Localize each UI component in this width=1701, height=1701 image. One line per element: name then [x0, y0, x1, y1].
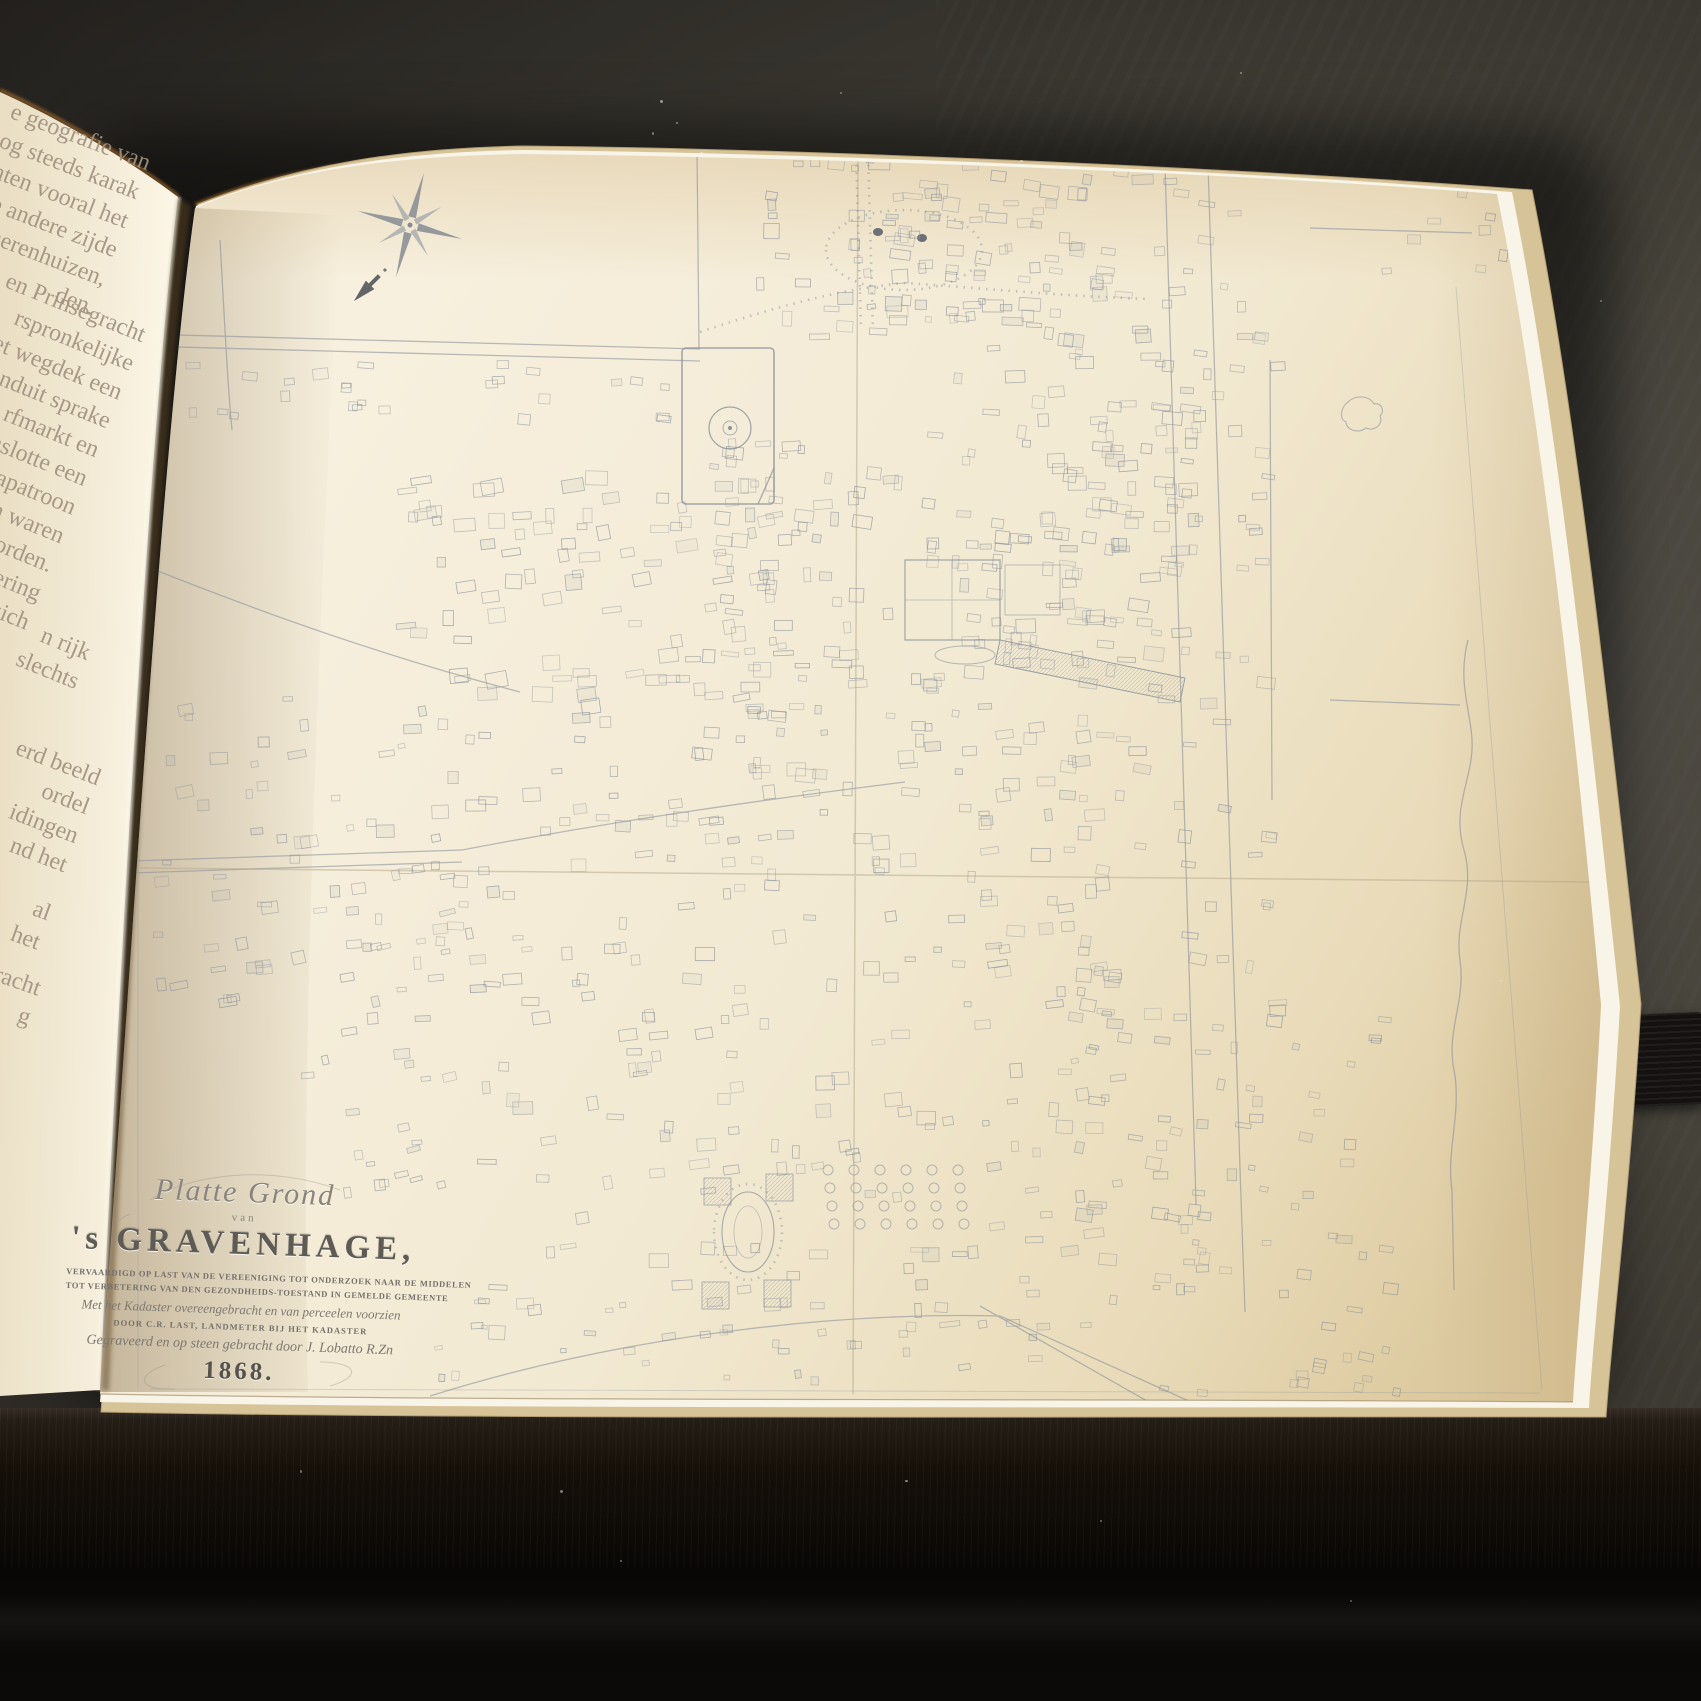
pond-dot [873, 228, 883, 236]
photo-of-open-map-book: e geografie van n nog steeds karak grach… [0, 0, 1701, 1701]
plaza-corner-garden [766, 1174, 793, 1201]
top-edge-shade [95, 140, 1615, 290]
book-scene-svg [0, 0, 1701, 1701]
plaza-corner-garden [704, 1178, 731, 1205]
park-basin-dot [728, 426, 732, 430]
map-title-cartouche: Platte Grond van 's GRAVENHAGE, VERVAARD… [62, 1170, 421, 1392]
